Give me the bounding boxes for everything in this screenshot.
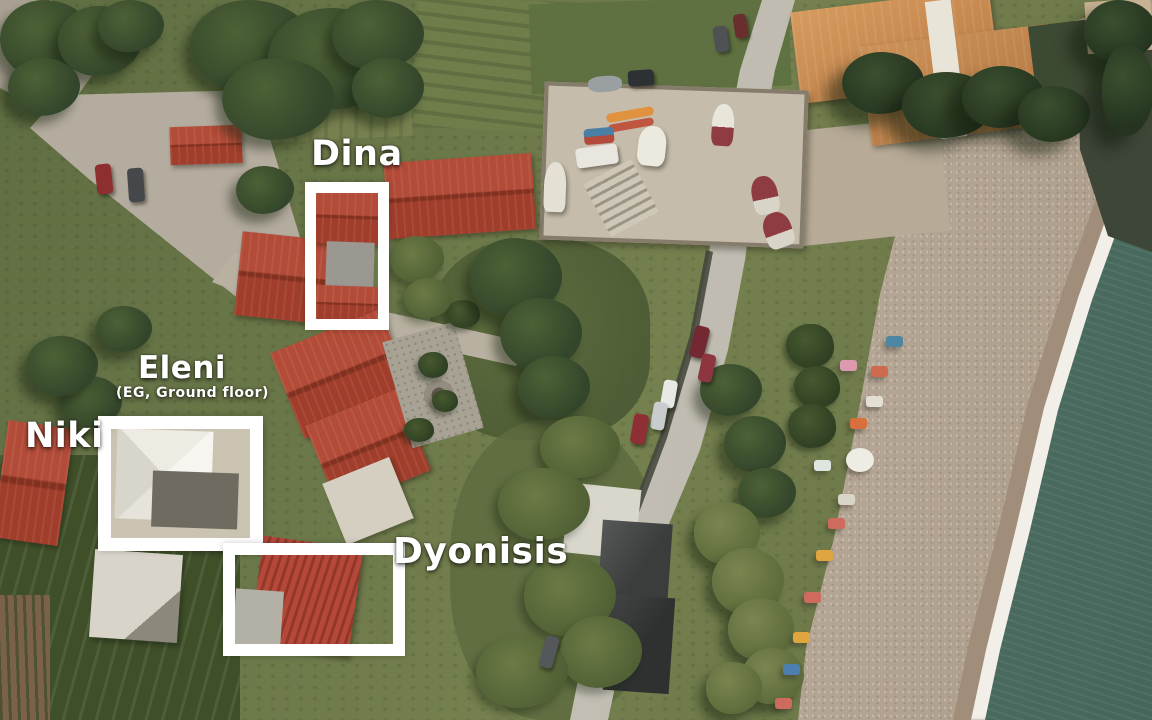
car xyxy=(94,163,113,195)
beach-lounger xyxy=(793,632,810,643)
beach-lounger xyxy=(814,460,831,471)
garden-bush xyxy=(418,352,448,378)
garden-bush xyxy=(446,300,480,328)
beach-bush xyxy=(788,404,836,448)
beach-lounger xyxy=(871,366,888,377)
car xyxy=(127,167,145,202)
beach-lounger xyxy=(840,360,857,371)
beach-umbrella xyxy=(846,448,874,472)
garden-bush xyxy=(432,390,458,412)
beach-bush xyxy=(786,324,834,368)
niki-label: Niki xyxy=(25,418,104,455)
tilled-field xyxy=(0,595,50,720)
kayak-stack xyxy=(583,127,614,146)
beach-lounger xyxy=(804,592,821,603)
beach-lounger xyxy=(816,550,833,561)
dyonisis-marker-box xyxy=(223,543,405,656)
beach-lounger xyxy=(886,336,903,347)
beach-umbrella xyxy=(850,418,867,429)
house xyxy=(89,549,183,643)
car xyxy=(627,69,654,87)
dyonisis-label: Dyonisis xyxy=(393,533,568,571)
tree xyxy=(1102,44,1152,136)
dina-label: Dina xyxy=(311,136,403,173)
building-roof xyxy=(169,125,242,165)
beach-lounger xyxy=(838,494,855,505)
aerial-photo: Dina Eleni (EG, Ground floor) Niki Dyoni… xyxy=(0,0,1152,720)
eleni-label: Eleni xyxy=(138,352,226,385)
beach-lounger xyxy=(783,664,800,675)
garden-bush xyxy=(404,418,434,442)
beach-bush xyxy=(794,366,840,408)
boat xyxy=(711,103,736,146)
niki-eleni-marker-box xyxy=(98,416,263,551)
building-roof xyxy=(384,153,537,239)
dina-marker-box xyxy=(305,182,389,330)
beach-lounger xyxy=(775,698,792,709)
beach-lounger xyxy=(828,518,845,529)
beach-lounger xyxy=(866,396,883,407)
boat-on-trailer xyxy=(543,162,567,213)
eleni-sublabel: (EG, Ground floor) xyxy=(116,386,269,401)
